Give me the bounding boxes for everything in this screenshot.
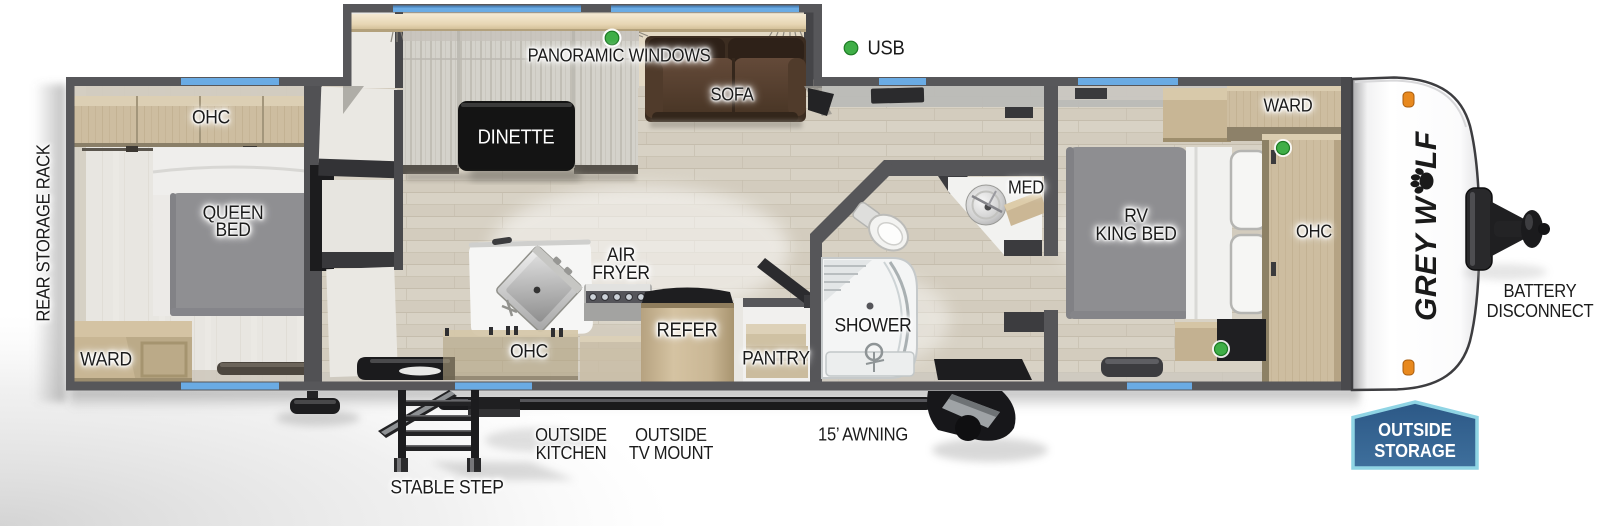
svg-text:GREY W: GREY W <box>1410 195 1443 321</box>
svg-text:LF: LF <box>1410 131 1443 169</box>
